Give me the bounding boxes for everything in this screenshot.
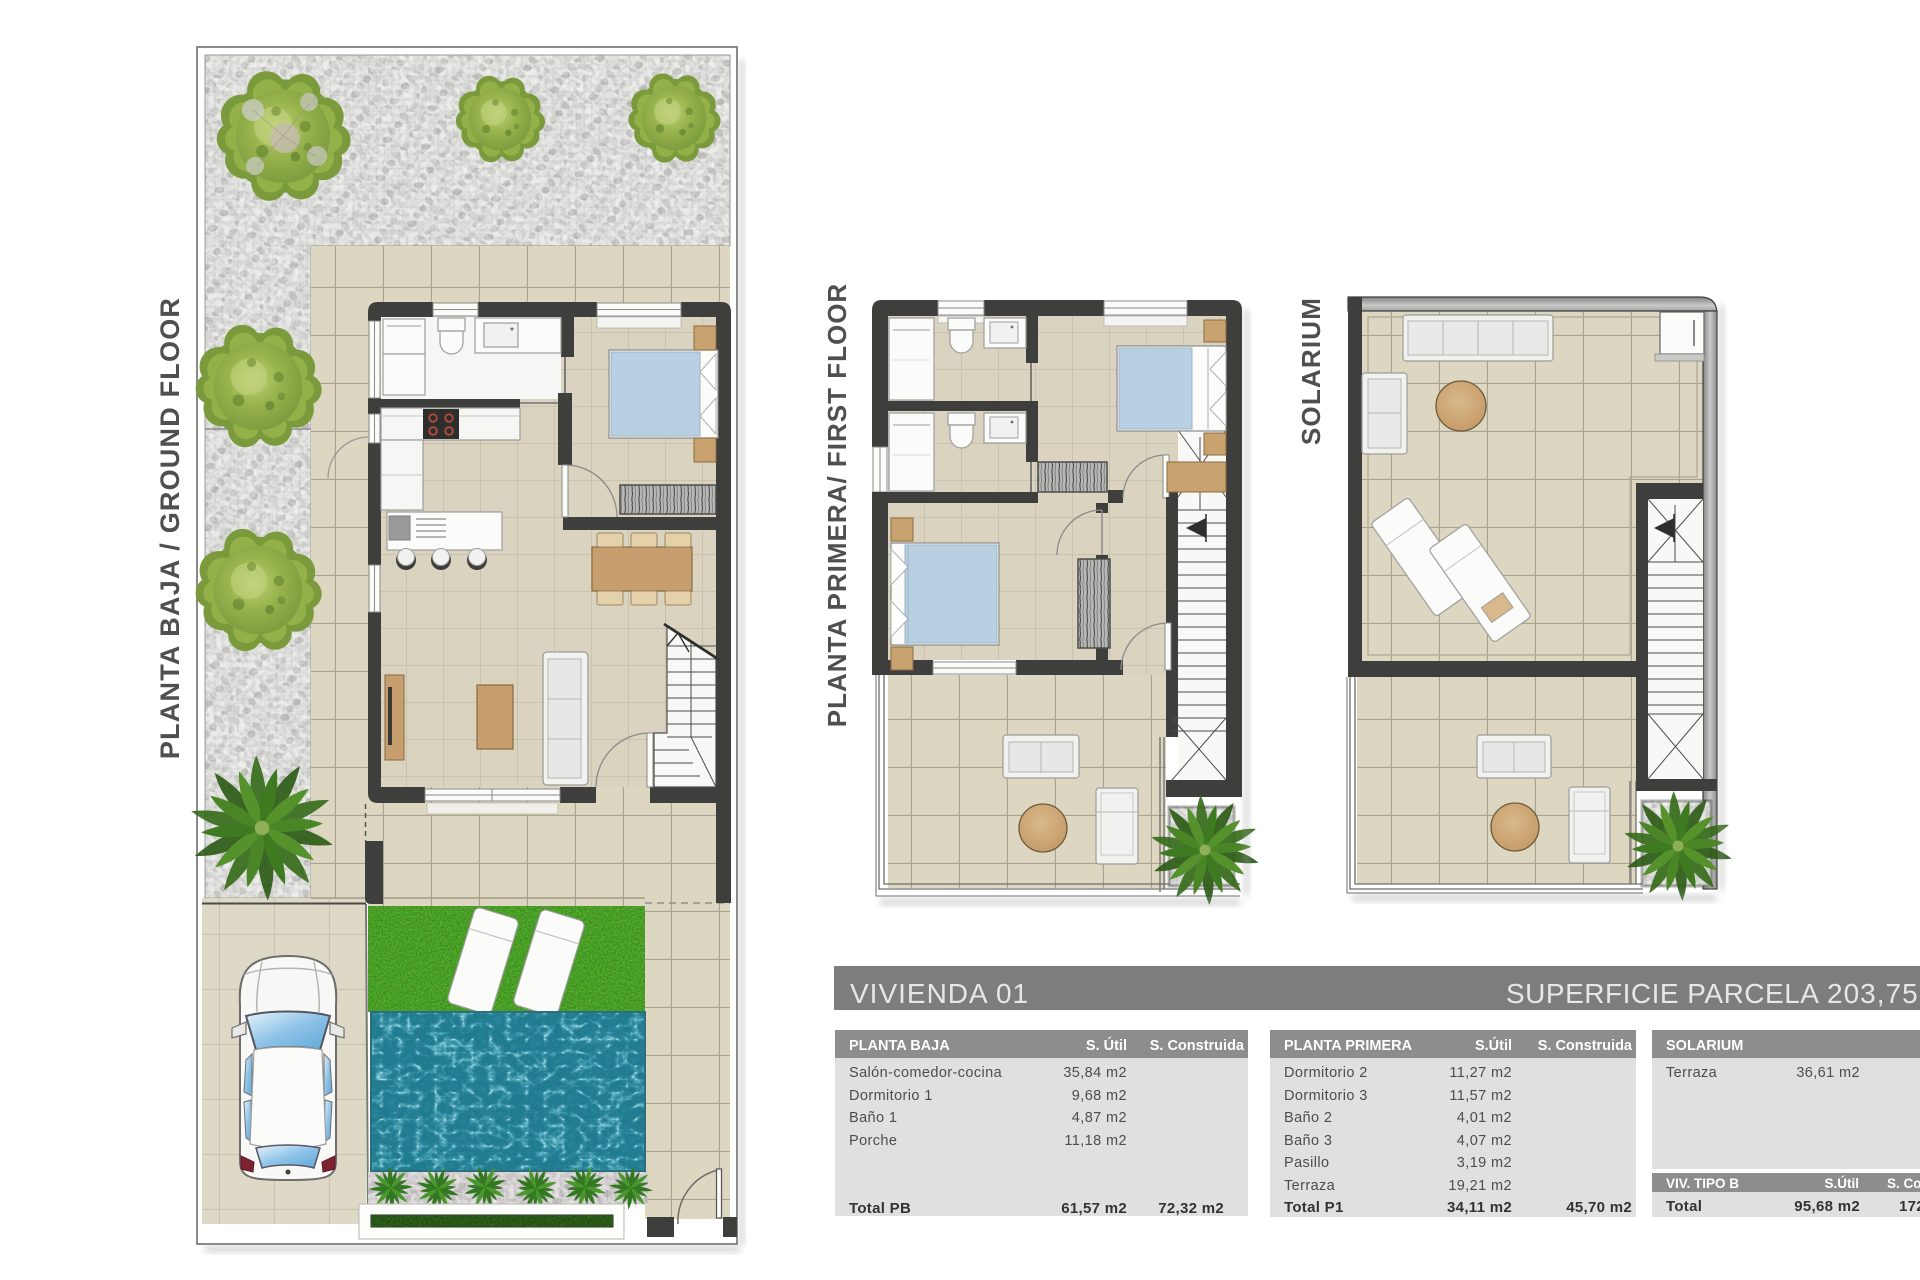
svg-text:Porche: Porche xyxy=(849,1133,897,1149)
svg-text:Baño 1: Baño 1 xyxy=(849,1110,897,1126)
svg-text:S. Construida: S. Construida xyxy=(1887,1176,1920,1191)
svg-text:61,57 m2: 61,57 m2 xyxy=(1061,1200,1127,1217)
svg-text:95,68 m2: 95,68 m2 xyxy=(1794,1198,1860,1215)
svg-text:PLANTA BAJA / GROUND FLOOR: PLANTA BAJA / GROUND FLOOR xyxy=(155,297,185,759)
svg-text:S. Útil: S. Útil xyxy=(1086,1036,1127,1054)
svg-text:PLANTA BAJA: PLANTA BAJA xyxy=(849,1038,950,1054)
svg-text:VIV. TIPO B: VIV. TIPO B xyxy=(1666,1176,1739,1191)
svg-text:PLANTA PRIMERA: PLANTA PRIMERA xyxy=(1284,1038,1413,1054)
svg-text:VIVIENDA 01: VIVIENDA 01 xyxy=(850,978,1029,1009)
svg-text:45,70 m2: 45,70 m2 xyxy=(1566,1199,1632,1216)
svg-text:SOLARIUM: SOLARIUM xyxy=(1666,1038,1743,1054)
svg-text:4,87 m2: 4,87 m2 xyxy=(1072,1110,1127,1126)
svg-text:S.Útil: S.Útil xyxy=(1824,1176,1859,1191)
svg-text:34,11 m2: 34,11 m2 xyxy=(1447,1199,1512,1216)
svg-text:SOLARIUM: SOLARIUM xyxy=(1296,297,1326,445)
svg-text:PLANTA PRIMERA/ FIRST FLOOR: PLANTA PRIMERA/ FIRST FLOOR xyxy=(822,283,852,727)
svg-text:3,19 m2: 3,19 m2 xyxy=(1457,1155,1512,1171)
svg-text:Dormitorio 1: Dormitorio 1 xyxy=(849,1088,933,1104)
svg-text:Dormitorio 2: Dormitorio 2 xyxy=(1284,1065,1368,1081)
svg-text:203,75m2: 203,75m2 xyxy=(1827,978,1920,1009)
svg-text:4,01 m2: 4,01 m2 xyxy=(1457,1110,1512,1126)
svg-text:72,32 m2: 72,32 m2 xyxy=(1158,1200,1224,1217)
svg-text:Baño 2: Baño 2 xyxy=(1284,1110,1332,1126)
svg-text:11,18 m2: 11,18 m2 xyxy=(1064,1133,1127,1149)
svg-text:S. Construida: S. Construida xyxy=(1538,1038,1633,1054)
svg-text:S.Útil: S.Útil xyxy=(1475,1036,1512,1054)
svg-text:Dormitorio 3: Dormitorio 3 xyxy=(1284,1088,1368,1104)
svg-text:Salón-comedor-cocina: Salón-comedor-cocina xyxy=(849,1065,1003,1081)
svg-text:Pasillo: Pasillo xyxy=(1284,1155,1330,1171)
svg-text:35,84 m2: 35,84 m2 xyxy=(1063,1065,1127,1081)
svg-text:SUPERFICIE PARCELA: SUPERFICIE PARCELA xyxy=(1506,978,1819,1009)
svg-text:11,27 m2: 11,27 m2 xyxy=(1449,1065,1512,1081)
svg-text:Terraza: Terraza xyxy=(1666,1065,1718,1081)
svg-text:Baño 3: Baño 3 xyxy=(1284,1133,1332,1149)
svg-text:Total: Total xyxy=(1666,1198,1702,1215)
svg-text:4,07 m2: 4,07 m2 xyxy=(1457,1133,1512,1149)
svg-text:Total P1: Total P1 xyxy=(1284,1199,1344,1216)
svg-text:Total PB: Total PB xyxy=(849,1200,911,1217)
svg-text:36,61 m2: 36,61 m2 xyxy=(1796,1065,1860,1081)
svg-text:11,57 m2: 11,57 m2 xyxy=(1449,1088,1512,1104)
svg-text:S. Construida: S. Construida xyxy=(1150,1038,1245,1054)
svg-text:9,68 m2: 9,68 m2 xyxy=(1072,1088,1127,1104)
svg-text:172,02 m2: 172,02 m2 xyxy=(1899,1198,1920,1215)
svg-text:19,21 m2: 19,21 m2 xyxy=(1448,1178,1512,1194)
svg-text:Terraza: Terraza xyxy=(1284,1178,1336,1194)
